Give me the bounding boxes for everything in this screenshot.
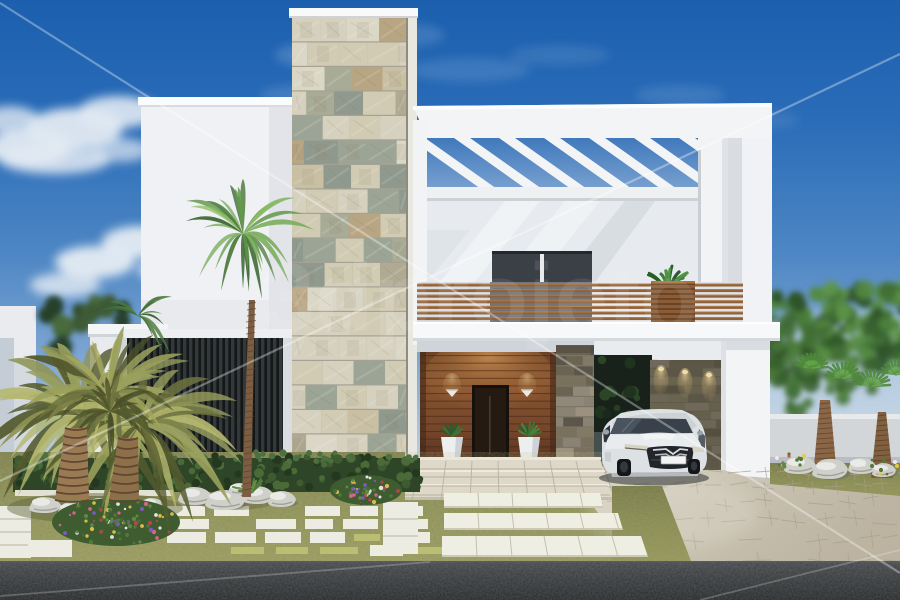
svg-text:3dprojeto: 3dprojeto	[261, 244, 698, 351]
